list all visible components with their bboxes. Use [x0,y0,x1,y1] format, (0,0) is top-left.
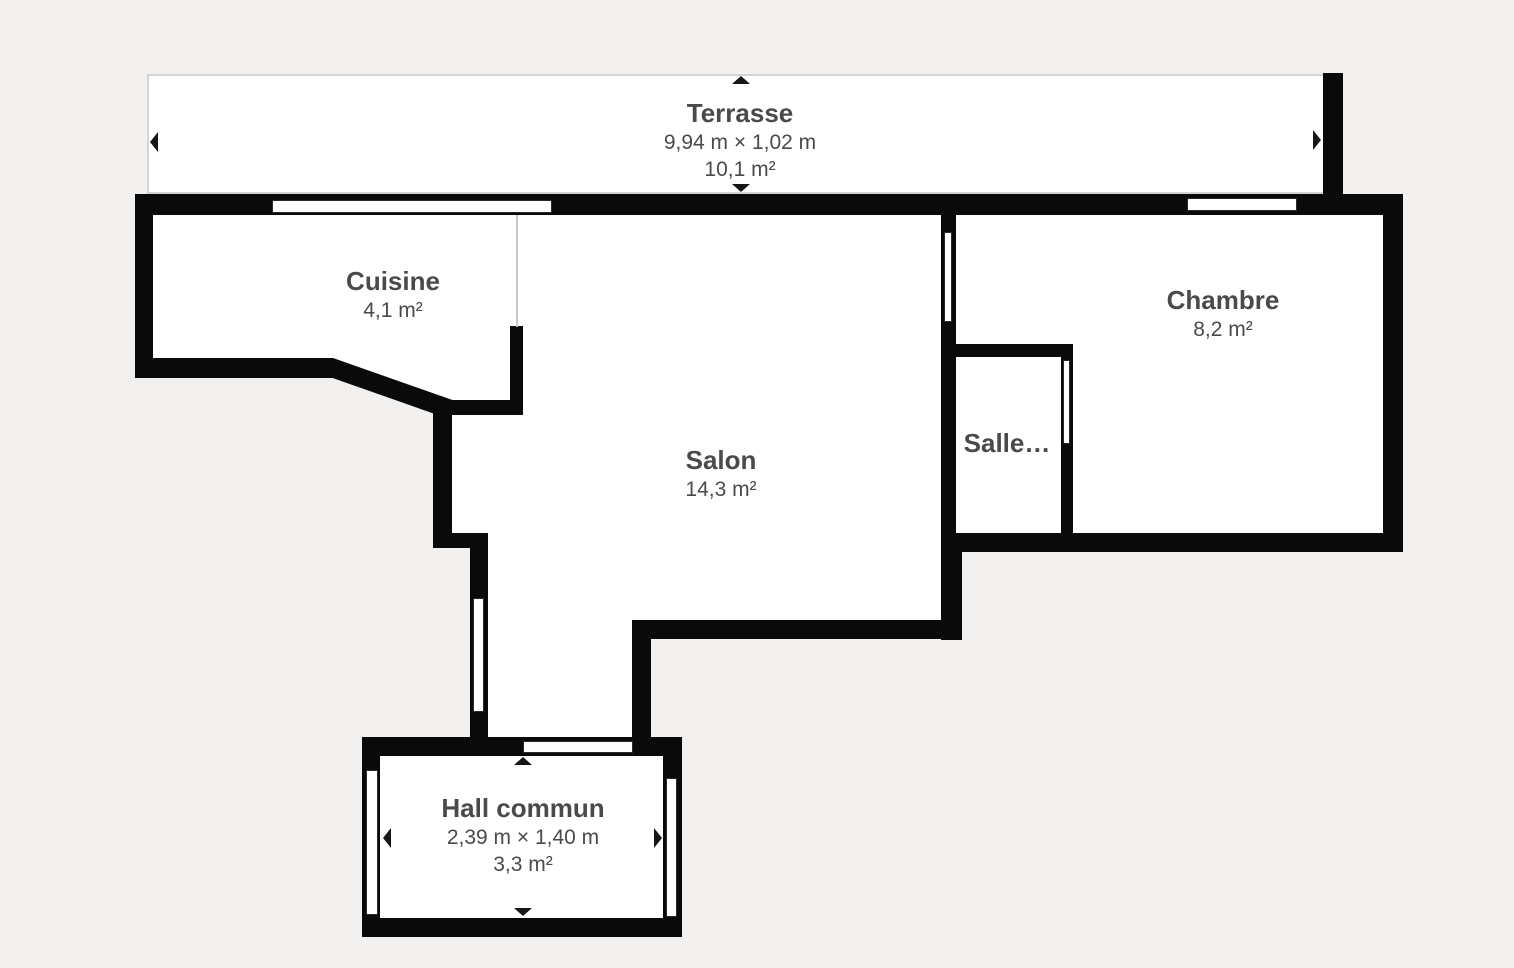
salon-area: 14,3 m² [685,476,756,503]
cuisine-label: Cuisine 4,1 m² [346,265,440,324]
door-hall-top [523,741,633,753]
terrasse-arrow-right-icon [1313,130,1321,150]
hall-arrow-right-icon [654,828,662,848]
wall-salon-step [433,533,488,548]
wall-chambre-bottom [941,533,1403,552]
salon-label: Salon 14,3 m² [685,444,756,503]
terrasse-arrow-down-icon [732,184,750,192]
wall-hall-top [362,737,682,756]
wall-corridor-right [632,620,651,744]
wall-salon-left [433,400,452,548]
wall-salle-top [941,344,1073,357]
wall-salon-lower-right [941,552,962,640]
wall-opening-vertical [510,326,523,415]
cuisine-area: 4,1 m² [346,297,440,324]
terrasse-arrow-left-icon [150,132,158,152]
wall-terrace-cap [1323,73,1343,195]
window-chambre-top [1187,198,1297,211]
room-chambre-region[interactable] [955,215,1383,533]
window-hall-right [666,778,677,917]
hall-arrow-left-icon [383,828,391,848]
salon-name: Salon [685,444,756,476]
hall-label: Hall commun 2,39 m × 1,40 m 3,3 m² [441,792,604,878]
hall-arrow-up-icon [514,757,532,765]
window-salon-chambre [944,232,952,322]
hall-dimensions: 2,39 m × 1,40 m [441,824,604,851]
hall-area: 3,3 m² [441,851,604,878]
window-corridor-left [473,598,484,712]
chambre-name: Chambre [1167,284,1280,316]
door-salle [1063,360,1070,444]
terrasse-label: Terrasse 9,94 m × 1,02 m 10,1 m² [664,97,816,183]
wall-salon-bottom [632,620,962,639]
divider-cuisine-salon [516,215,518,327]
wall-cuisine-bottom [135,358,333,378]
cuisine-name: Cuisine [346,265,440,297]
terrasse-name: Terrasse [664,97,816,129]
window-cuisine-top [272,200,552,213]
terrasse-dimensions: 9,94 m × 1,02 m [664,129,816,156]
room-salon-corridor-region[interactable] [488,620,633,738]
chambre-label: Chambre 8,2 m² [1167,284,1280,343]
window-hall-left [366,770,378,915]
wall-left [135,196,153,378]
wall-right [1383,194,1403,552]
hall-arrow-down-icon [514,908,532,916]
room-cuisine-region[interactable] [153,215,941,358]
chambre-area: 8,2 m² [1167,316,1280,343]
room-salon-region[interactable] [488,548,941,620]
hall-name: Hall commun [441,792,604,824]
wall-hall-bottom [362,918,682,937]
floorplan-canvas: Terrasse 9,94 m × 1,02 m 10,1 m² Cuisine… [0,0,1514,968]
terrasse-area: 10,1 m² [664,156,816,183]
salle-label: Salle… [964,427,1051,459]
terrasse-arrow-up-icon [732,76,750,84]
salle-name: Salle… [964,427,1051,459]
